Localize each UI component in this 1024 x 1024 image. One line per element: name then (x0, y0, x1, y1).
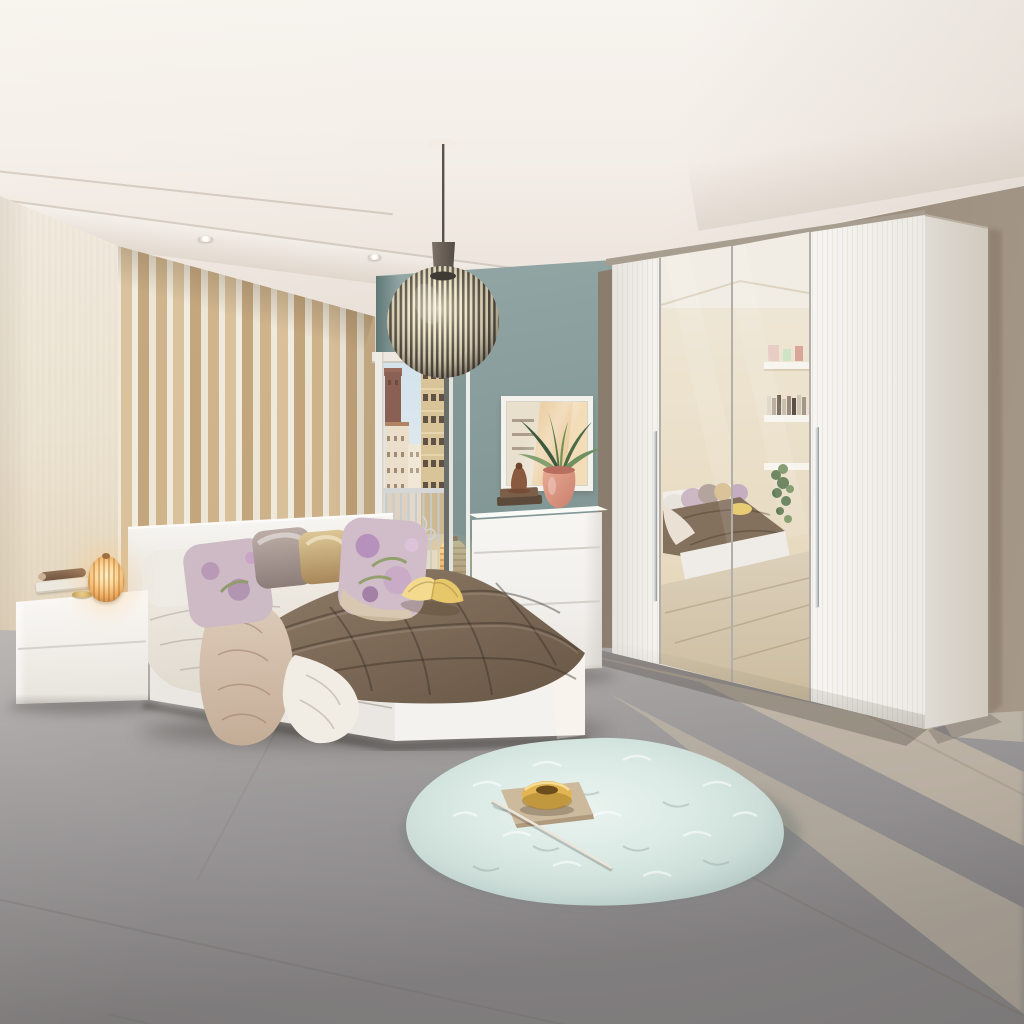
door-gap (659, 258, 661, 664)
wardrobe-wall-shadow (988, 228, 1002, 716)
double-bed (120, 495, 600, 751)
pendant-collar (430, 272, 456, 281)
door-gap (809, 232, 811, 701)
wardrobe (580, 193, 1010, 749)
lamp-topknot (102, 553, 110, 559)
tile-seam (110, 1014, 657, 1024)
bedroom-scene (0, 0, 1024, 1024)
round-rug (383, 726, 813, 916)
amber-table-lamp (88, 556, 124, 602)
door-grain (811, 215, 925, 729)
roll-end (38, 573, 47, 581)
bedside-table (16, 590, 148, 704)
gold-dish (72, 591, 92, 598)
lamp-weave-texture (88, 556, 124, 602)
recessed-light-icon (368, 254, 381, 260)
wardrobe-side-panel (925, 215, 988, 729)
gold-bowl (520, 781, 574, 816)
wardrobe-handle (815, 427, 819, 608)
pendant-lamp (384, 132, 504, 378)
pendant-cord (442, 144, 444, 244)
door-gap (731, 246, 733, 682)
pendant-shading (387, 266, 499, 378)
recessed-light-icon (198, 236, 213, 242)
rug-pile (406, 738, 784, 906)
mirror-reflection (661, 232, 809, 702)
drawer-groove (18, 640, 146, 650)
door-grain (612, 258, 659, 664)
wardrobe-handle (653, 431, 657, 602)
